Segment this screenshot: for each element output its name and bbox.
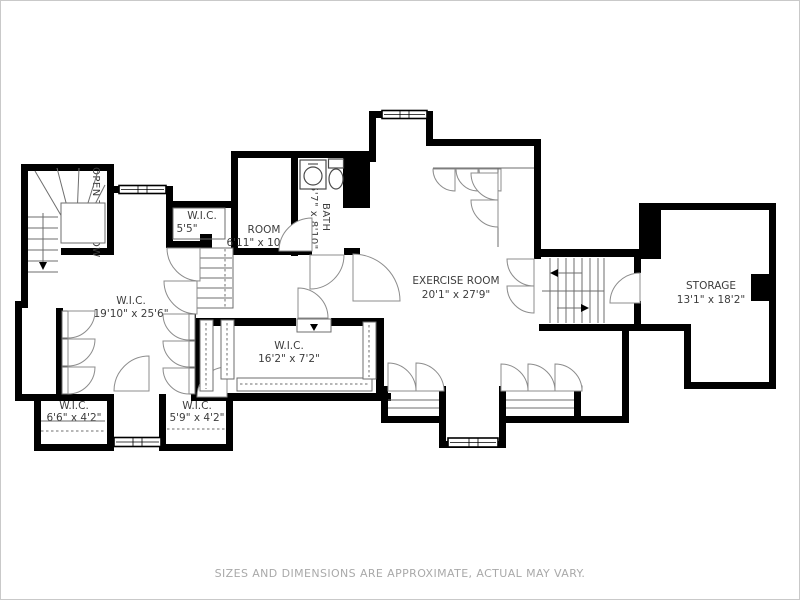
room-label-bath: BATH 5'7" x 8'10" bbox=[301, 173, 331, 261]
wall bbox=[346, 154, 376, 162]
wall bbox=[231, 151, 298, 158]
wall bbox=[684, 382, 776, 389]
room-label-open-to-below: OPEN TO BELOW bbox=[87, 165, 101, 259]
wall bbox=[344, 248, 360, 255]
wall bbox=[574, 386, 581, 423]
room-label-storage: STORAGE bbox=[651, 280, 771, 292]
wall bbox=[107, 164, 114, 248]
wall bbox=[21, 164, 28, 308]
wall bbox=[684, 324, 691, 389]
room-dims-exercise: 20'1" x 27'9" bbox=[396, 289, 516, 301]
room-dims-room: 6'11" x 10'10" bbox=[214, 237, 314, 249]
wall bbox=[298, 151, 344, 158]
wall bbox=[369, 111, 433, 118]
wall bbox=[539, 324, 629, 331]
room-label-exercise: EXERCISE ROOM bbox=[386, 275, 526, 287]
room-dims-wic-main: 19'10" x 25'6" bbox=[81, 308, 181, 320]
room-label-wic-small: W.I.C. bbox=[167, 210, 237, 222]
wall bbox=[196, 318, 296, 326]
wall bbox=[56, 308, 63, 401]
wall bbox=[200, 234, 212, 249]
floorplan-canvas: OPEN TO BELOW W.I.C. 5'5" ROOM 6'11" x 1… bbox=[0, 0, 800, 600]
wall bbox=[15, 301, 22, 401]
room-dims-wic-bl: 6'6" x 4'2" bbox=[29, 412, 119, 424]
room-dims-wic-long: 16'2" x 7'2" bbox=[244, 353, 334, 365]
room-label-wic-long: W.I.C. bbox=[254, 340, 324, 352]
room-label-wic-main: W.I.C. bbox=[96, 295, 166, 307]
disclaimer-text: SIZES AND DIMENSIONS ARE APPROXIMATE, AC… bbox=[1, 567, 799, 580]
bath-name: BATH bbox=[319, 173, 331, 261]
wall bbox=[534, 139, 541, 259]
wall bbox=[629, 324, 691, 331]
wall bbox=[499, 416, 581, 423]
wall bbox=[639, 203, 661, 259]
wall bbox=[196, 318, 203, 401]
wall bbox=[231, 248, 291, 255]
wall bbox=[189, 311, 196, 394]
room-label-room: ROOM bbox=[229, 224, 299, 236]
bath-dims: 5'7" x 8'10" bbox=[307, 173, 319, 261]
wall bbox=[381, 416, 446, 423]
wall bbox=[376, 318, 384, 393]
wall bbox=[499, 386, 506, 448]
room-label-wic-bl: W.I.C. bbox=[39, 400, 109, 412]
wall bbox=[639, 203, 776, 210]
wall bbox=[574, 416, 629, 423]
wall bbox=[634, 257, 641, 273]
wall bbox=[159, 444, 233, 451]
room-dims-storage: 13'1" x 18'2" bbox=[651, 294, 771, 306]
wall bbox=[107, 438, 166, 446]
room-label-wic-bm: W.I.C. bbox=[162, 400, 232, 412]
wall bbox=[34, 444, 114, 451]
wall bbox=[622, 324, 629, 423]
wall bbox=[331, 318, 383, 326]
stairs-mini bbox=[196, 248, 233, 308]
wall bbox=[539, 249, 641, 257]
wall bbox=[439, 441, 506, 448]
wall bbox=[166, 201, 238, 208]
wall bbox=[426, 139, 541, 146]
stairs-right bbox=[542, 258, 604, 323]
wall bbox=[114, 186, 173, 193]
room-dims-wic-bm: 5'9" x 4'2" bbox=[152, 412, 242, 424]
